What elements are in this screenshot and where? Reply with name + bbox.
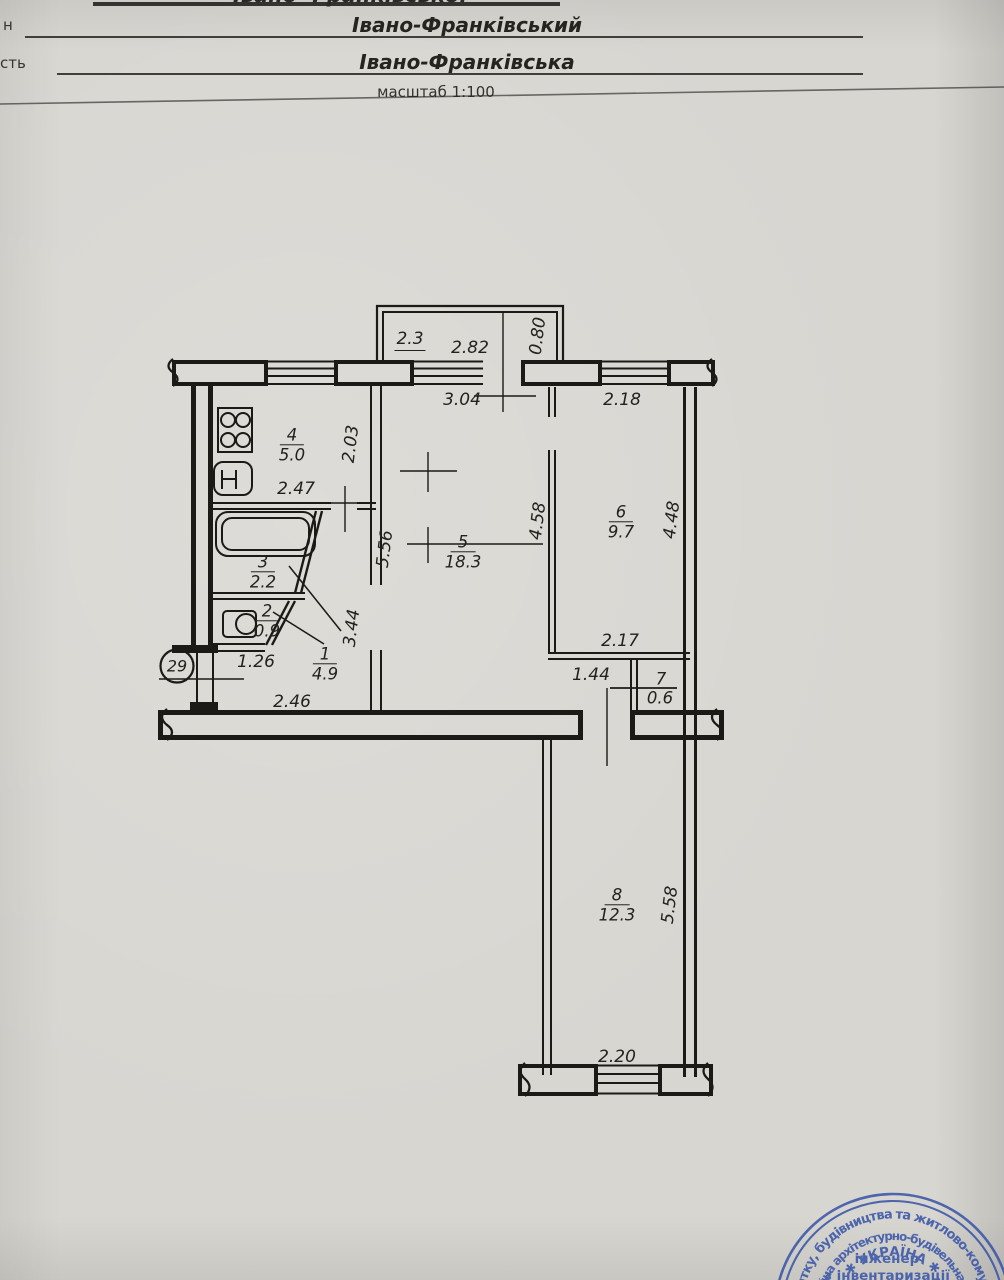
room1-area: 4.9 (312, 665, 338, 685)
scanned-floor-plan-page: Івано-Франківської н Івано-Франківський … (0, 0, 1004, 1280)
leader-lines (273, 566, 341, 644)
dim-room6-width: 2.17 (601, 631, 639, 651)
room3-area: 2.2 (250, 573, 276, 593)
header-curve-line (0, 87, 1004, 104)
room3-number: 3 (251, 553, 276, 572)
wall-break-marks (162, 359, 722, 1096)
stamp-line1: інженер (855, 1251, 920, 1267)
dim-entry: 1.26 (237, 652, 275, 672)
window-kitchen (268, 362, 334, 385)
room4-area: 5.0 (279, 446, 305, 466)
stamp: розвитку, будівництва та житлово-комунал… (775, 1194, 1004, 1280)
toilet-icon (223, 611, 256, 637)
room2-number: 2 (255, 602, 280, 621)
dim-window-room8: 2.20 (598, 1047, 636, 1067)
room6-area: 9.7 (608, 523, 634, 543)
room-label-kitchen: 4 5.0 (279, 426, 305, 465)
bathtub-icon (216, 512, 315, 556)
room7-number: 7 (656, 670, 667, 689)
room5-area: 18.3 (445, 553, 482, 573)
dim-niche: 1.44 (572, 665, 610, 685)
dim-kitchen-width: 2.47 (277, 479, 315, 499)
stove-icon (218, 408, 252, 452)
room-label-hall: 1 4.9 (312, 645, 338, 684)
room5-number: 5 (451, 533, 476, 552)
window-room5 (414, 362, 483, 385)
window-room6 (602, 362, 667, 385)
room8-area: 12.3 (599, 906, 636, 926)
dim-balcony-area: 2.3 (394, 329, 425, 351)
room7-area: 0.6 (647, 689, 673, 708)
window-room8 (598, 1066, 658, 1094)
room-label-living: 5 18.3 (445, 533, 482, 572)
plan-linework: розвитку, будівництва та житлово-комунал… (0, 0, 1004, 1280)
dim-window-room5: 3.04 (443, 390, 481, 410)
room2-area: 0.9 (254, 622, 280, 642)
room6-number: 6 (609, 503, 634, 522)
dim-balcony-width: 2.82 (451, 338, 489, 358)
room4-number: 4 (280, 426, 305, 445)
room1-number: 1 (313, 645, 338, 664)
room-label-bedroom: 6 9.7 (608, 503, 634, 542)
stamp-line2: з інвентаризації (824, 1268, 950, 1280)
room8-number: 8 (605, 886, 630, 905)
sink-icon (214, 462, 252, 495)
dim-window-room6: 2.18 (603, 390, 641, 410)
room-label-wc: 2 0.9 (254, 602, 280, 641)
room-label-room8: 8 12.3 (599, 886, 636, 925)
dim-entry-width: 2.46 (273, 692, 311, 712)
apartment-number: 29 (167, 657, 187, 676)
room-label-bath: 3 2.2 (250, 553, 276, 592)
